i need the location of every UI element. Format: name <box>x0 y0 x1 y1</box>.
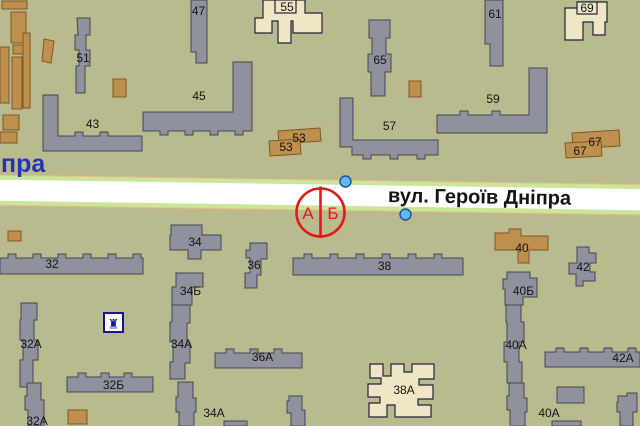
building-label-32b: 32Б <box>103 378 124 392</box>
building-label-53-lower: 53 <box>279 140 293 154</box>
building-label-65: 65 <box>373 53 387 67</box>
building-label-38a: 38А <box>393 383 414 397</box>
building-label-47: 47 <box>192 4 206 18</box>
tan-building-cluster-west <box>0 1 126 143</box>
tan-block-65 <box>409 81 421 97</box>
gray-strip-south-1 <box>224 421 247 426</box>
building-label-59: 59 <box>486 92 500 106</box>
metro-station-symbol[interactable]: А Б <box>297 187 345 239</box>
building-label-45: 45 <box>192 89 206 103</box>
building-label-67-upper: 67 <box>588 135 602 149</box>
building-label-40: 40 <box>515 241 529 255</box>
building-label-34a-south: 34А <box>203 406 224 420</box>
building-40a-south <box>507 383 527 426</box>
monument-icon: ♜ <box>108 317 120 332</box>
building-label-32a-north: 32А <box>20 337 41 351</box>
building-label-67-lower: 67 <box>573 144 587 158</box>
building-label-34a-north: 34А <box>171 337 192 351</box>
building-label-40a-south: 40А <box>538 406 559 420</box>
building-label-38: 38 <box>378 259 392 273</box>
building-32 <box>0 254 143 274</box>
building-label-36a: 36А <box>252 350 273 364</box>
building-label-34: 34 <box>188 235 202 249</box>
building-label-40a-north: 40А <box>505 338 526 352</box>
metro-exit-a-label: А <box>302 204 314 223</box>
building-label-57: 57 <box>383 119 397 133</box>
building-34a-south <box>176 382 196 426</box>
building-unlabeled-south <box>287 396 305 426</box>
gray-block-se <box>557 387 584 403</box>
building-label-51: 51 <box>76 51 90 65</box>
building-label-53-upper: 53 <box>292 131 306 145</box>
tan-block-sw <box>8 231 21 241</box>
metro-exit-b-label: Б <box>327 204 338 223</box>
building-label-40b: 40Б <box>513 284 534 298</box>
building-label-42: 42 <box>576 260 590 274</box>
building-label-36: 36 <box>247 258 261 272</box>
metro-entrance-dot-east[interactable] <box>400 209 411 220</box>
metro-entrance-dot-west[interactable] <box>340 176 351 187</box>
poi-marker[interactable]: ♜ <box>104 313 123 332</box>
building-label-69: 69 <box>580 1 594 15</box>
building-label-32: 32 <box>45 257 59 271</box>
building-label-34b: 34Б <box>180 284 201 298</box>
street-name-partial: пра <box>1 150 46 178</box>
building-label-32a-south: 32А <box>26 414 47 426</box>
gray-strip-south-2 <box>552 421 581 426</box>
map-canvas[interactable]: вул. Героїв Дніпра пра <box>0 0 640 426</box>
map-viewport: вул. Героїв Дніпра пра <box>0 0 640 426</box>
building-edge-southeast <box>617 393 637 426</box>
building-label-55: 55 <box>280 0 294 14</box>
building-label-43: 43 <box>86 117 100 131</box>
street-name-label: вул. Героїв Дніпра <box>388 185 572 210</box>
building-label-61: 61 <box>488 7 502 21</box>
building-label-42a: 42А <box>612 351 633 365</box>
tan-block-south <box>68 410 87 424</box>
